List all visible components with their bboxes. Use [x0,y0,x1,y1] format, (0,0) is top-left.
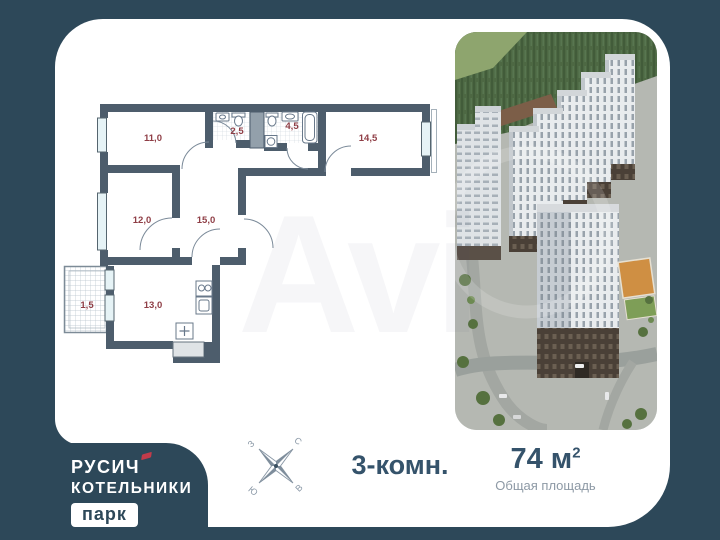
compass-rose: С В Ю З [236,426,316,506]
logo-park-badge: парк [71,503,138,527]
wc-sink-icon [216,113,229,121]
kitchen-sink-icon [196,281,212,296]
room-area-label: 13,0 [144,300,163,311]
room-area-label: 4,5 [285,121,299,132]
compass-west-label: З [246,439,257,450]
compass-east-label: В [293,482,304,493]
room-area-label: 11,0 [144,133,162,144]
rooms-count-label: 3-комн. [345,450,455,481]
total-area-caption: Общая площадь [483,478,608,493]
vent-shaft [250,112,264,148]
building-render-photo [455,32,657,430]
room-area-label: 15,0 [197,215,216,226]
bath-sink-icon [282,112,298,121]
room-area-label: 12,0 [133,215,152,226]
logo-flag-icon [141,452,152,460]
floor-plan: 11,0 2,5 4,5 14,5 12,0 15,0 1,5 13,0 [60,95,460,375]
developer-logo: РУСИЧ КОТЕЛЬНИКИ парк [71,458,192,527]
total-area-block: 74 м2 Общая площадь [483,443,608,493]
bathtub-icon [303,112,318,143]
exterior-wall-mark [432,110,437,173]
compass-center [274,464,278,468]
logo-project-name: КОТЕЛЬНИКИ [71,481,192,497]
total-area-value: 74 м2 [483,443,608,476]
compass-north-label: С [292,435,304,447]
kitchen-unit-icon [196,297,212,314]
kitchen-counter [173,342,218,357]
logo-brand-name: РУСИЧ [71,458,140,476]
stove-icon [176,323,193,339]
listing-card: Avi [0,0,720,540]
washing-machine-icon [265,136,277,148]
compass-south-label: Ю [246,484,259,498]
room-area-label: 14,5 [359,133,378,144]
room-area-label: 1,5 [80,300,94,311]
room-area-label: 2,5 [230,126,244,137]
